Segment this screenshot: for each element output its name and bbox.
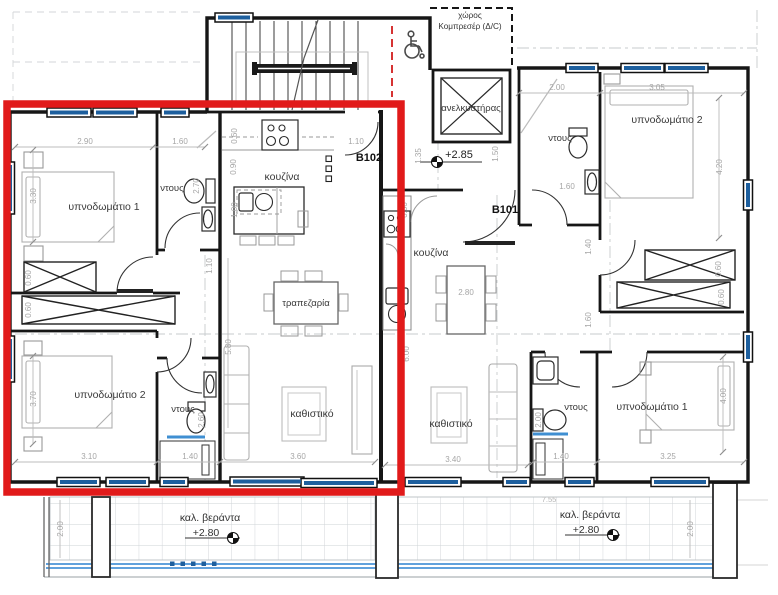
room-label-b101-bedroom2: υπνοδωμάτιο 2 <box>631 114 702 126</box>
dim-b101-bath-w: 1.60 <box>559 182 575 191</box>
room-label-b102-dining: τραπεζαρία <box>282 298 330 309</box>
dim-b102-hall: 1.10 <box>205 258 214 274</box>
projection-lines <box>13 12 205 108</box>
veranda-left-label: καλ. βεράντα <box>180 512 240 524</box>
dim-veranda-right-width: 7.55 <box>542 495 557 504</box>
dim-b101-bedroom1-h: 4.00 <box>719 388 728 404</box>
dim-b102-shower-bottom-w: 1.40 <box>182 452 198 461</box>
dim-b101-hall1: 1.40 <box>584 239 593 255</box>
veranda-right <box>398 497 713 560</box>
stove-icon <box>262 120 298 150</box>
dim-b101-bedroom2-h: 4.20 <box>715 159 724 175</box>
dim-b102-dining-h: 5.80 <box>224 339 233 355</box>
dim-b102-shower-top-h: 2.70 <box>192 178 201 194</box>
floor-plan-drawing: χώρος Κομπρεσέρ (Δ/C) ανελκυστήρας +2.85… <box>0 0 778 595</box>
dim-b102-w1: 0.60 <box>24 270 33 286</box>
elevator-label: ανελκυστήρας <box>441 103 501 114</box>
room-label-b102-shower-top: ντους <box>160 183 184 194</box>
b102-shower-bottom-fixtures <box>160 372 216 479</box>
b101-dining-set <box>436 266 496 334</box>
dim-b101-dining-w: 2.80 <box>458 288 474 297</box>
room-label-b102-living: καθιστικό <box>290 408 333 420</box>
dim-b101-hall2: 1.60 <box>584 312 593 328</box>
dim-b102-living-w: 3.60 <box>290 452 306 461</box>
floor-plan: χώρος Κομπρεσέρ (Δ/C) ανελκυστήρας +2.85… <box>0 0 778 595</box>
b102-living-furniture <box>224 346 372 460</box>
dim-b102-bedroom2-h: 3.70 <box>29 391 38 407</box>
dim-b101-living-w: 3.40 <box>445 455 461 464</box>
room-label-b102-bedroom1: υπνοδωμάτιο 1 <box>68 201 139 213</box>
dim-b102-shower-bottom-h: 2.60 <box>197 412 206 428</box>
dim-veranda-right-depth: 2.00 <box>686 521 695 537</box>
veranda-right-label: καλ. βεράντα <box>560 509 620 521</box>
dim-b101-bedroom2-w: 3.05 <box>649 83 665 92</box>
dim-b101-w2: 0.60 <box>717 289 726 305</box>
dim-b101-w1: 0.60 <box>714 261 723 277</box>
room-label-b101-kitchen: κουζίνα <box>414 247 449 259</box>
b101-kitchen <box>383 196 437 330</box>
apartment-id-b102: B102 <box>356 152 382 164</box>
room-label-b101-shower-top: ντους <box>548 133 572 144</box>
dim-b101-bedroom1-w: 3.25 <box>660 452 676 461</box>
room-label-b101-living: καθιστικό <box>429 418 472 430</box>
highlight-rectangle-b102 <box>7 104 401 492</box>
dim-b102-shower-top-w: 1.60 <box>172 137 188 146</box>
wheelchair-icon <box>405 31 424 58</box>
room-label-b101-shower-bottom: ντους <box>564 402 588 413</box>
room-label-b102-bedroom2: υπνοδωμάτιο 2 <box>74 389 145 401</box>
dim-b101-entry-l: 1.35 <box>414 148 423 164</box>
room-label-b101-bedroom1: υπνοδωμάτιο 1 <box>616 401 687 413</box>
veranda-left-level: +2.80 <box>193 527 220 539</box>
room-label-b102-shower-bottom: ντους <box>171 404 195 415</box>
dim-b101-shower-bottom-h: 2.00 <box>534 412 543 428</box>
dim-b101-bath-top: 2.00 <box>549 83 565 92</box>
dim-veranda-left-depth: 2.00 <box>56 521 65 537</box>
lobby-level-label: +2.85 <box>445 149 473 161</box>
dim-b102-k2: 0.90 <box>229 159 238 175</box>
dim-b102-bedroom1-w: 2.90 <box>77 137 93 146</box>
dim-b102-w2: 0.60 <box>24 302 33 318</box>
room-label-b102-kitchen: κουζίνα <box>265 171 300 183</box>
dim-b102-k1: 0.60 <box>230 128 239 144</box>
veranda-right-level: +2.80 <box>573 524 600 536</box>
small-squares-symbol <box>326 156 332 182</box>
compressor-label-line2: Κομπρεσέρ (Δ/C) <box>438 22 502 31</box>
apartment-id-b101: B101 <box>492 204 518 216</box>
dim-b101-entry-r: 1.50 <box>491 146 500 162</box>
dim-b102-bedroom1-h: 3.30 <box>29 188 38 204</box>
dim-b102-bedroom2-w: 3.10 <box>81 452 97 461</box>
dim-b102-entry: 1.10 <box>348 137 364 146</box>
dim-b101-shower-bottom-w: 1.40 <box>553 452 569 461</box>
kitchen-sink-icon <box>239 193 253 211</box>
stair-handrail <box>252 62 357 75</box>
compressor-label-line1: χώρος <box>458 11 482 20</box>
dim-b102-k3: 1.00 <box>230 202 239 218</box>
staircase <box>232 20 368 110</box>
